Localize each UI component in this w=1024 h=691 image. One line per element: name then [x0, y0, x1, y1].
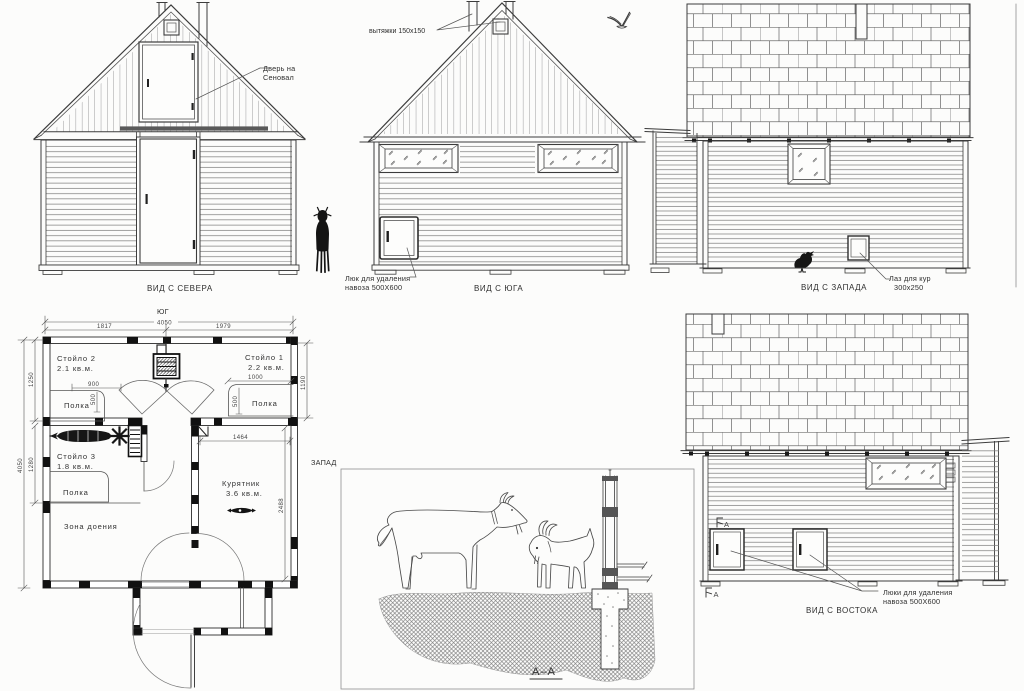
svg-text:Люк для удаления: Люк для удаления [345, 274, 410, 283]
svg-text:А: А [724, 520, 729, 529]
svg-text:1464: 1464 [233, 435, 248, 441]
svg-text:Стойло 1: Стойло 1 [245, 353, 284, 362]
svg-text:Дверь на: Дверь на [263, 64, 296, 73]
svg-text:Полка: Полка [64, 401, 90, 410]
svg-text:4050: 4050 [157, 321, 172, 327]
svg-text:ВИД С ЮГА: ВИД С ЮГА [474, 284, 523, 293]
svg-text:навоза 500Х600: навоза 500Х600 [345, 283, 402, 292]
svg-text:1817: 1817 [97, 324, 112, 330]
svg-text:Люки для удаления: Люки для удаления [883, 588, 953, 597]
svg-text:1190: 1190 [301, 375, 307, 390]
svg-text:1280: 1280 [29, 457, 35, 472]
svg-text:вытяжки 150х150: вытяжки 150х150 [369, 28, 425, 35]
svg-text:ВИД С ВОСТОКА: ВИД С ВОСТОКА [806, 606, 878, 615]
svg-text:1.8 кв.м.: 1.8 кв.м. [57, 462, 94, 471]
svg-text:Стойло 3: Стойло 3 [57, 452, 96, 461]
svg-text:500: 500 [91, 394, 97, 405]
svg-text:Стойло 2: Стойло 2 [57, 354, 96, 363]
svg-text:ВИД С СЕВЕРА: ВИД С СЕВЕРА [147, 284, 213, 293]
svg-text:2.1 кв.м.: 2.1 кв.м. [57, 364, 94, 373]
svg-text:Полка: Полка [252, 399, 278, 408]
svg-text:Лаз для кур: Лаз для кур [889, 274, 931, 283]
svg-text:4050: 4050 [18, 458, 24, 473]
svg-text:Зона доения: Зона доения [64, 522, 118, 531]
svg-text:А: А [714, 590, 719, 599]
svg-text:1250: 1250 [29, 372, 35, 387]
svg-text:А–А: А–А [532, 666, 556, 678]
svg-text:900: 900 [88, 382, 99, 388]
svg-text:1000: 1000 [248, 375, 263, 381]
svg-text:500: 500 [233, 396, 239, 407]
svg-text:2.2 кв.м.: 2.2 кв.м. [248, 363, 285, 372]
svg-text:1979: 1979 [216, 324, 231, 330]
svg-text:2488: 2488 [279, 498, 285, 513]
svg-text:3.6 кв.м.: 3.6 кв.м. [226, 489, 263, 498]
svg-text:Сеновал: Сеновал [263, 73, 294, 82]
svg-text:Курятник: Курятник [222, 479, 260, 488]
svg-text:ВИД С ЗАПАДА: ВИД С ЗАПАДА [801, 283, 867, 292]
svg-text:300х250: 300х250 [894, 283, 923, 292]
svg-text:Полка: Полка [63, 488, 89, 497]
svg-text:ЮГ: ЮГ [157, 307, 169, 316]
svg-text:ЗАПАД: ЗАПАД [311, 458, 337, 467]
svg-text:навоза 500Х600: навоза 500Х600 [883, 597, 940, 606]
